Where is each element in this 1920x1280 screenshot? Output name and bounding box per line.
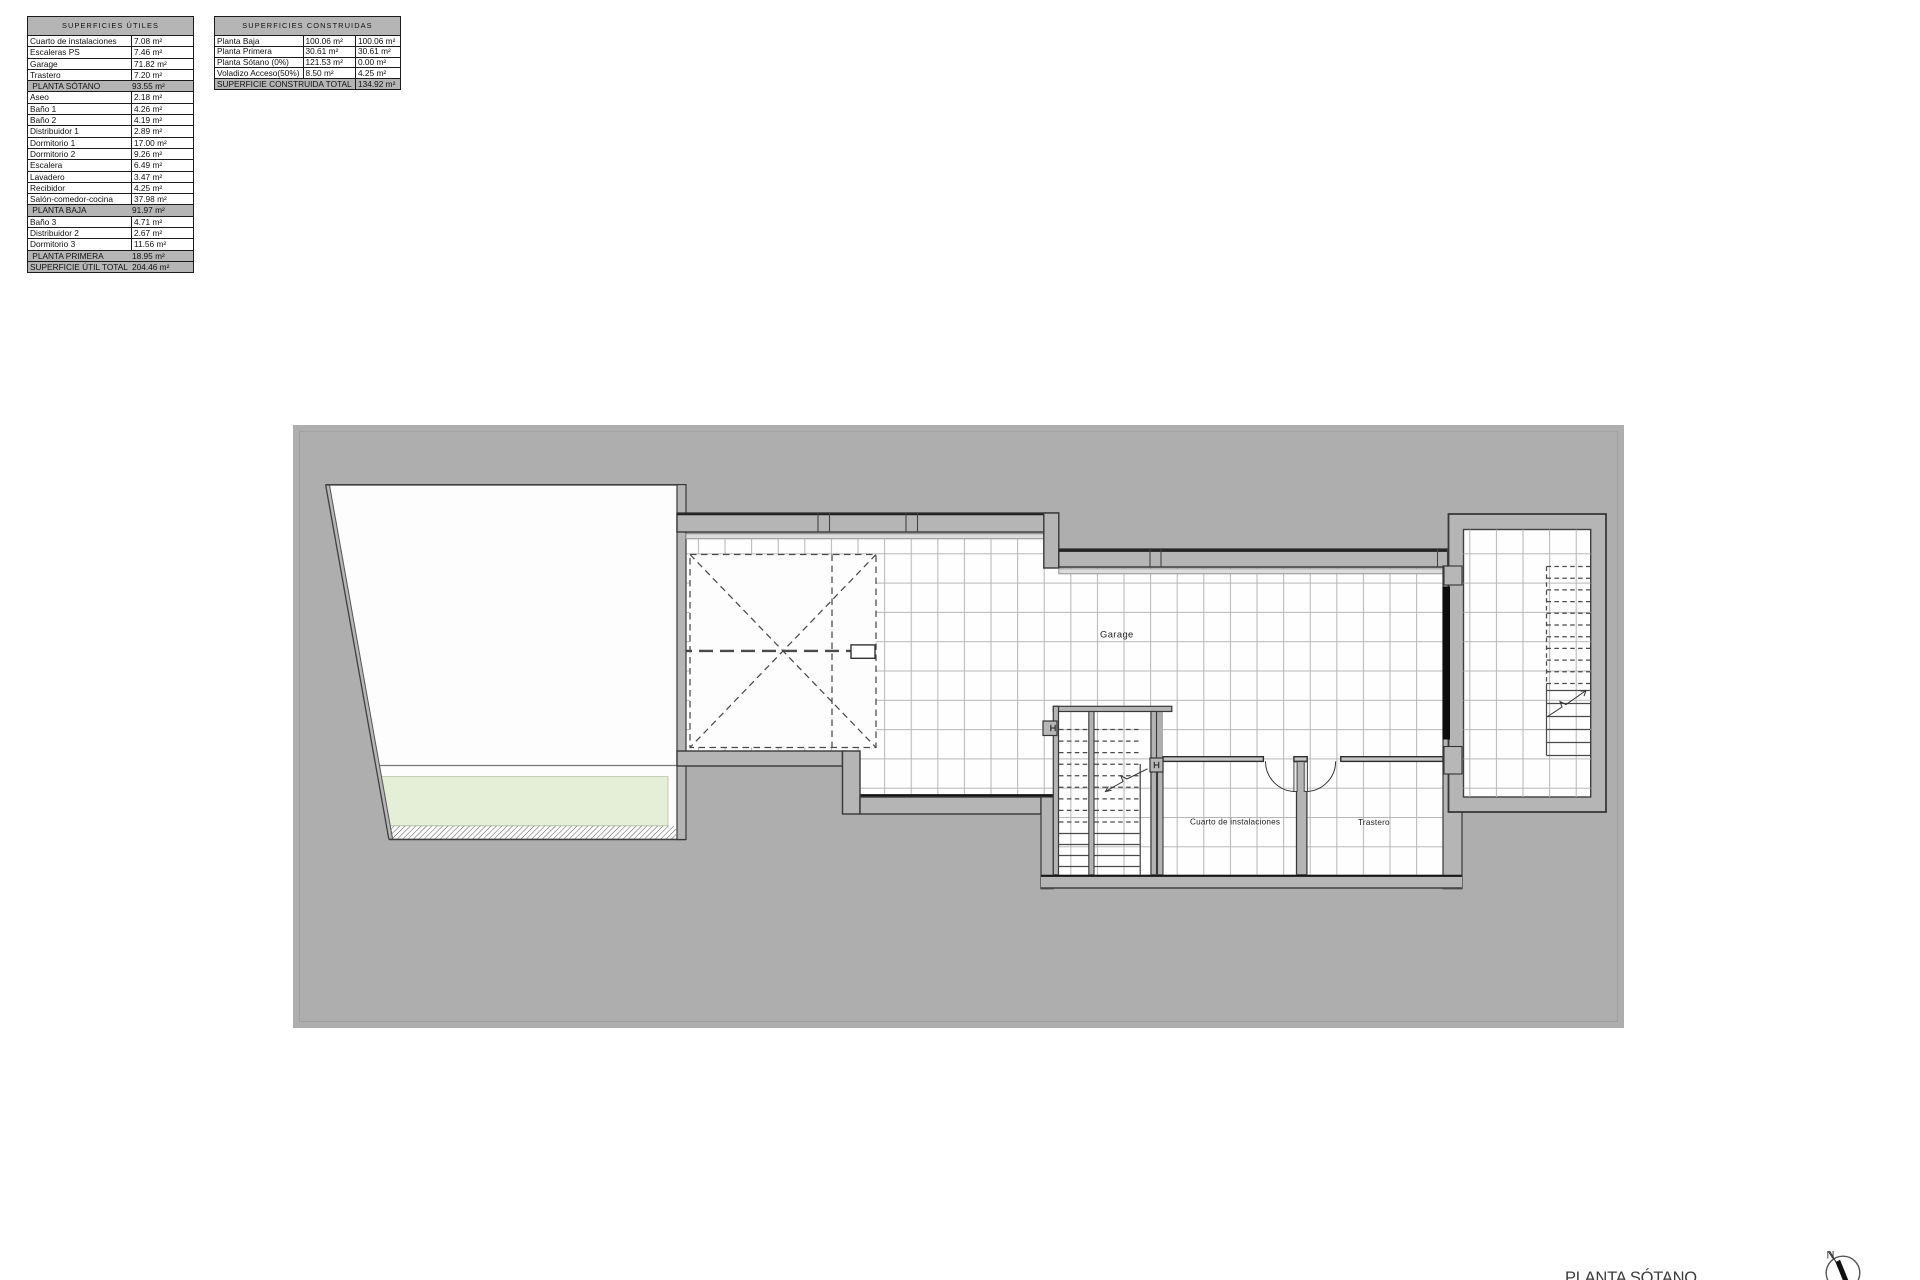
svg-text:Trastero: Trastero: [1358, 818, 1390, 827]
svg-text:Cuarto de instalaciones: Cuarto de instalaciones: [1190, 817, 1280, 826]
svg-text:Garage: Garage: [1100, 629, 1134, 640]
svg-text:N: N: [1827, 1250, 1835, 1262]
